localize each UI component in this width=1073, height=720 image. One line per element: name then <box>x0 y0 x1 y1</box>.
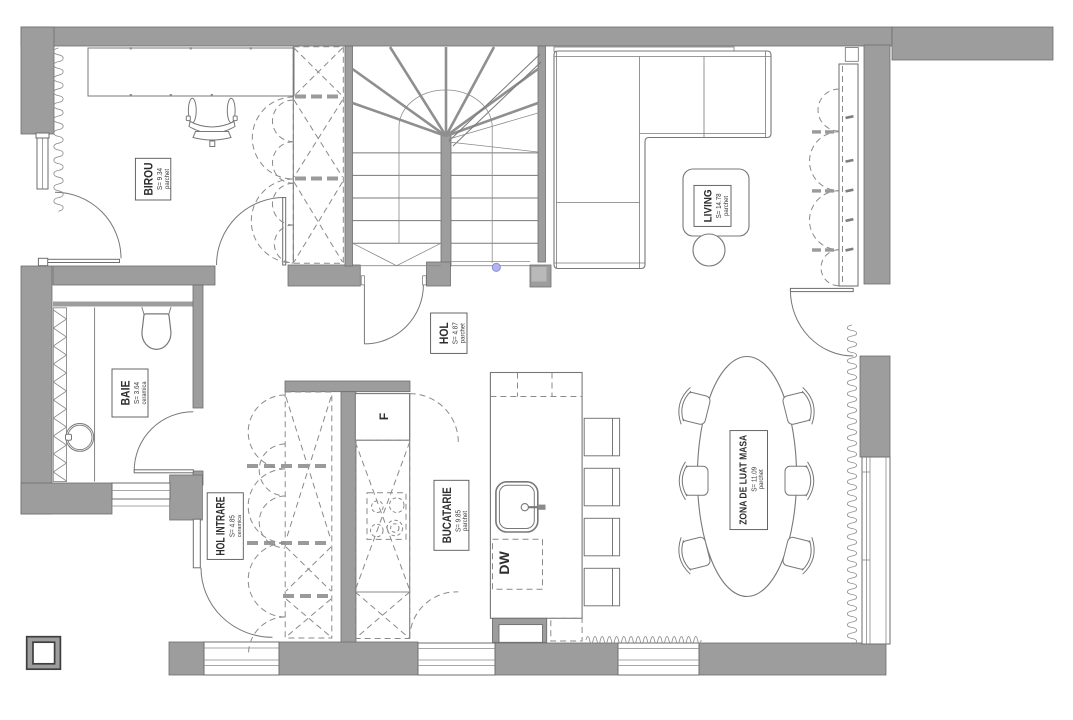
svg-text:S= 4.87: S= 4.87 <box>453 322 460 344</box>
svg-text:S= 11.09: S= 11.09 <box>752 467 759 492</box>
svg-text:parchet: parchet <box>724 196 730 216</box>
svg-text:parchet: parchet <box>461 323 467 343</box>
svg-text:HOL: HOL <box>439 322 451 344</box>
svg-text:S= 9.34: S= 9.34 <box>157 168 164 190</box>
svg-text:ZONA DE LUAT MASA: ZONA DE LUAT MASA <box>738 434 750 524</box>
svg-text:F: F <box>377 413 391 420</box>
svg-text:BAIE: BAIE <box>121 380 133 405</box>
svg-text:BUCATARIE: BUCATARIE <box>442 487 454 543</box>
svg-text:DW: DW <box>496 551 512 575</box>
svg-text:HOL INTRARE: HOL INTRARE <box>214 497 228 556</box>
svg-text:S= 4.85: S= 4.85 <box>230 515 237 537</box>
svg-text:S= 3.64: S= 3.64 <box>134 382 141 404</box>
svg-text:BIROU: BIROU <box>144 163 156 196</box>
svg-text:parchet: parchet <box>165 169 171 189</box>
svg-text:S= 14.78: S= 14.78 <box>716 193 723 218</box>
svg-text:S= 9.85: S= 9.85 <box>456 510 463 532</box>
svg-text:parchet: parchet <box>463 511 469 531</box>
svg-text:ceramica: ceramica <box>237 514 243 537</box>
svg-text:parchet: parchet <box>759 469 765 489</box>
svg-text:LIVING: LIVING <box>703 189 715 222</box>
svg-text:ceramica: ceramica <box>142 381 148 405</box>
